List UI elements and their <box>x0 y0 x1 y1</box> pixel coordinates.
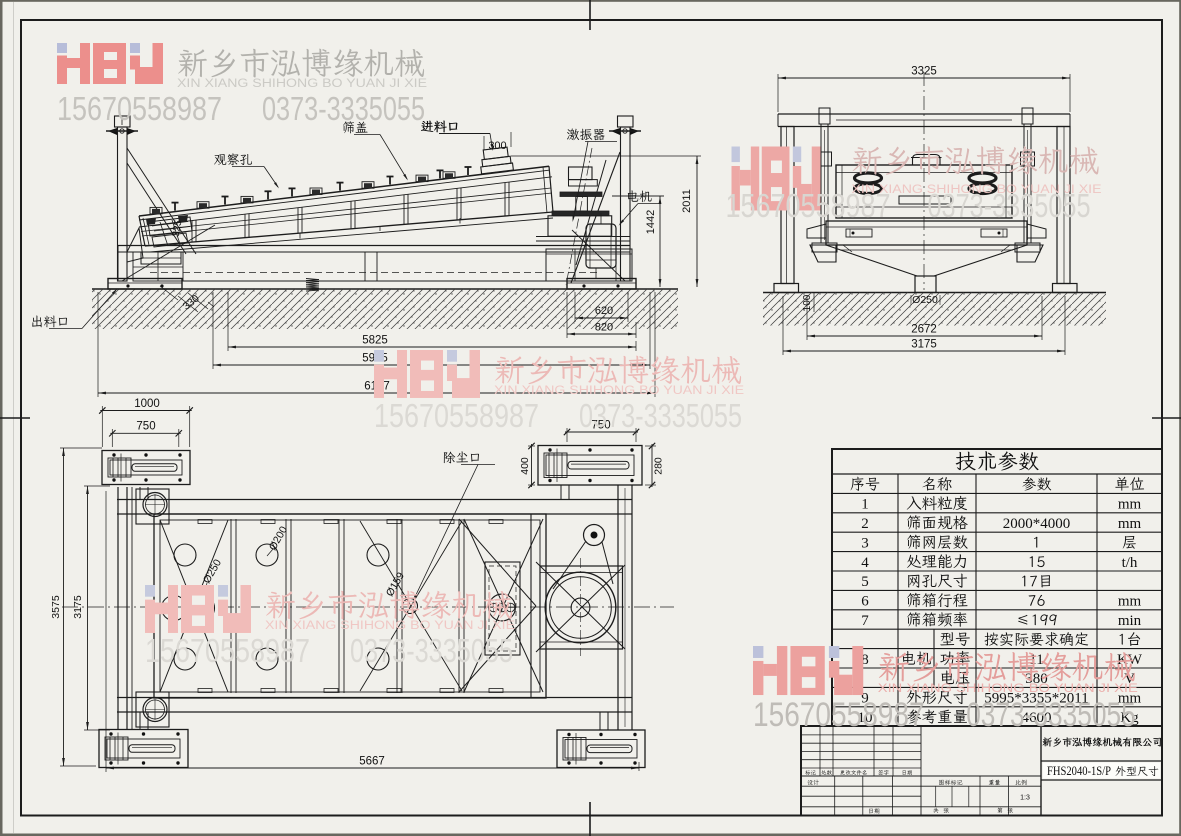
svg-text:2672: 2672 <box>911 324 937 336</box>
svg-text:mm: mm <box>1118 516 1142 532</box>
svg-text:100: 100 <box>802 294 813 311</box>
svg-text:3175: 3175 <box>911 339 937 351</box>
svg-text:FHS2040-1S/P: FHS2040-1S/P <box>1047 764 1111 778</box>
svg-text:6: 6 <box>861 594 869 610</box>
svg-text:2000*4000: 2000*4000 <box>1003 516 1071 532</box>
svg-text:1000: 1000 <box>134 398 160 410</box>
svg-text:750: 750 <box>136 421 155 433</box>
svg-text:min: min <box>1118 613 1142 629</box>
svg-text:mm: mm <box>1118 594 1142 610</box>
svg-text:3575: 3575 <box>50 595 62 619</box>
svg-text:4: 4 <box>861 555 869 571</box>
svg-text:620: 620 <box>595 305 613 317</box>
svg-text:820: 820 <box>595 322 613 334</box>
svg-text:7: 7 <box>861 613 869 629</box>
svg-text:2011: 2011 <box>681 189 693 213</box>
svg-text:5825: 5825 <box>362 335 388 347</box>
svg-text:280: 280 <box>653 457 665 475</box>
svg-text:mm: mm <box>1118 497 1142 513</box>
svg-text:3175: 3175 <box>72 595 84 619</box>
svg-text:1442: 1442 <box>645 210 657 234</box>
svg-text:3: 3 <box>861 535 869 551</box>
svg-text:400: 400 <box>519 457 531 475</box>
svg-text:Ø250: Ø250 <box>912 294 938 306</box>
svg-text:1:3: 1:3 <box>1020 795 1030 802</box>
svg-text:2: 2 <box>861 516 869 532</box>
svg-text:3325: 3325 <box>911 66 937 78</box>
svg-text:1: 1 <box>861 497 869 513</box>
svg-text:t/h: t/h <box>1122 555 1138 571</box>
svg-text:300: 300 <box>488 140 506 152</box>
svg-text:5: 5 <box>861 574 869 590</box>
svg-text:5667: 5667 <box>359 756 385 768</box>
